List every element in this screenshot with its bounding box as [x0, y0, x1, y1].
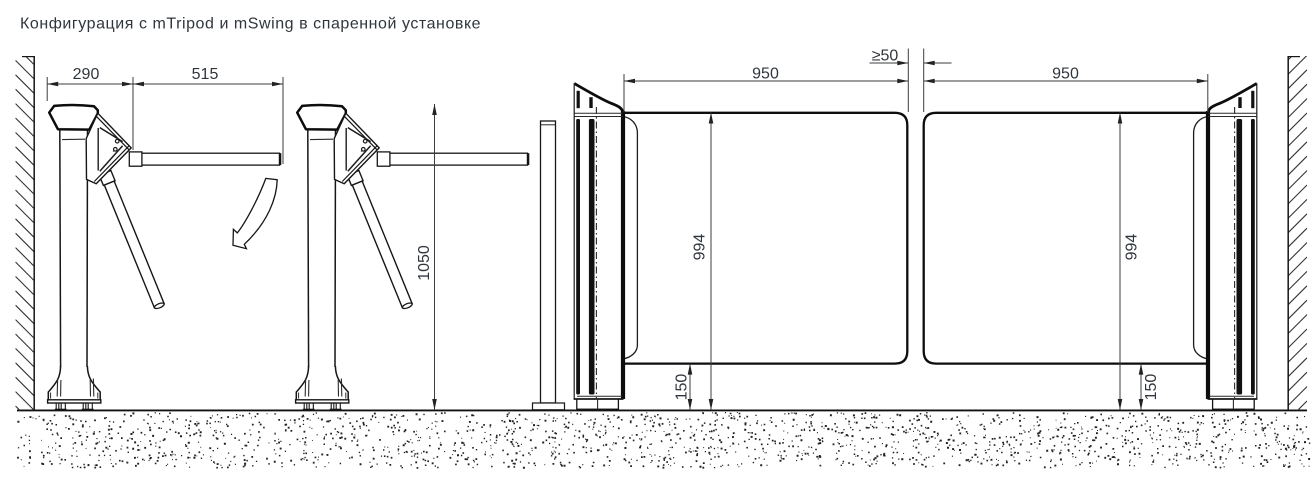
svg-text:≥50: ≥50 [872, 48, 899, 65]
svg-text:290: 290 [73, 66, 100, 83]
svg-text:994: 994 [692, 234, 709, 261]
svg-text:994: 994 [1124, 234, 1141, 261]
svg-text:515: 515 [192, 66, 219, 83]
svg-text:1050: 1050 [416, 245, 433, 281]
svg-text:Конфигурация с mTripod и mSwin: Конфигурация с mTripod и mSwing в спарен… [20, 16, 481, 33]
svg-text:150: 150 [674, 374, 691, 401]
svg-text:950: 950 [1052, 66, 1079, 83]
svg-text:950: 950 [752, 66, 779, 83]
svg-text:150: 150 [1143, 374, 1160, 401]
